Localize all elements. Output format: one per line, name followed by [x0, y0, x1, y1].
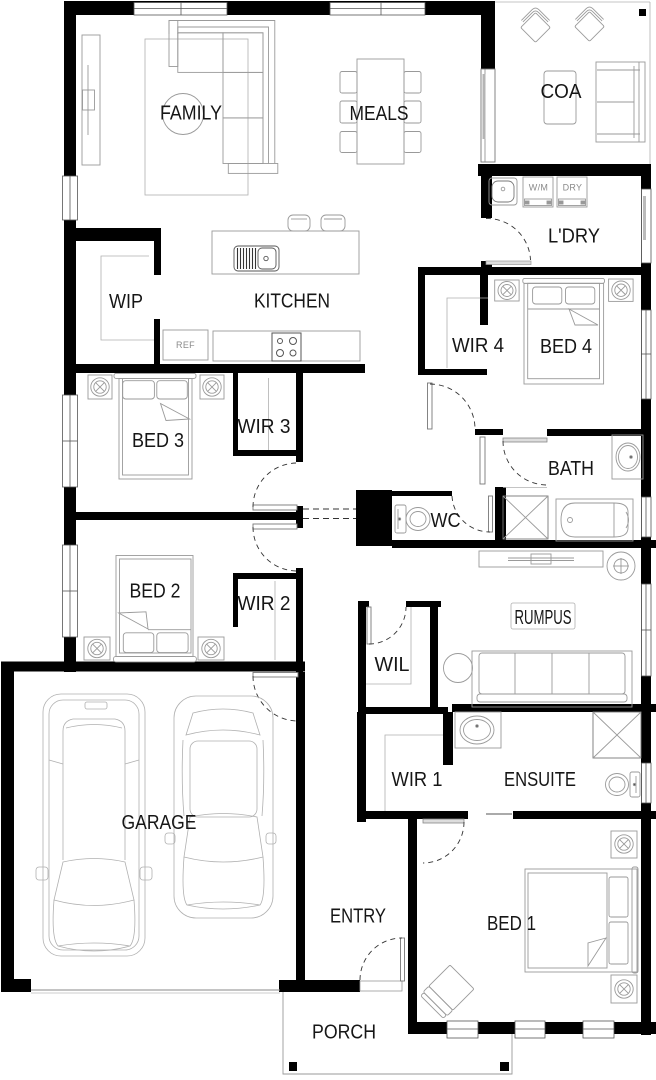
svg-text:BED 3: BED 3: [132, 430, 184, 452]
svg-text:DRY: DRY: [563, 183, 583, 193]
svg-text:BED 2: BED 2: [130, 581, 181, 603]
svg-text:GARAGE: GARAGE: [122, 812, 197, 834]
svg-text:WIR 2: WIR 2: [238, 593, 291, 615]
svg-text:MEALS: MEALS: [350, 103, 409, 125]
svg-text:WIP: WIP: [109, 291, 143, 313]
svg-text:PORCH: PORCH: [312, 1022, 376, 1044]
svg-text:BATH: BATH: [548, 458, 594, 480]
svg-text:ENSUITE: ENSUITE: [504, 769, 576, 791]
svg-text:FAMILY: FAMILY: [160, 103, 222, 125]
svg-text:WIR 1: WIR 1: [392, 769, 443, 791]
svg-text:REF: REF: [176, 340, 195, 350]
svg-text:COA: COA: [541, 81, 583, 103]
svg-text:BED 1: BED 1: [487, 913, 536, 935]
svg-text:WC: WC: [431, 510, 461, 532]
svg-text:KITCHEN: KITCHEN: [254, 291, 330, 313]
svg-text:RUMPUS: RUMPUS: [515, 607, 572, 629]
svg-text:WIR 4: WIR 4: [452, 335, 504, 357]
svg-text:BED 4: BED 4: [540, 336, 592, 358]
svg-text:ENTRY: ENTRY: [330, 906, 386, 928]
svg-text:WIL: WIL: [375, 654, 410, 676]
svg-text:L'DRY: L'DRY: [548, 226, 600, 248]
svg-text:W/M: W/M: [529, 183, 548, 193]
svg-text:WIR 3: WIR 3: [238, 416, 291, 438]
